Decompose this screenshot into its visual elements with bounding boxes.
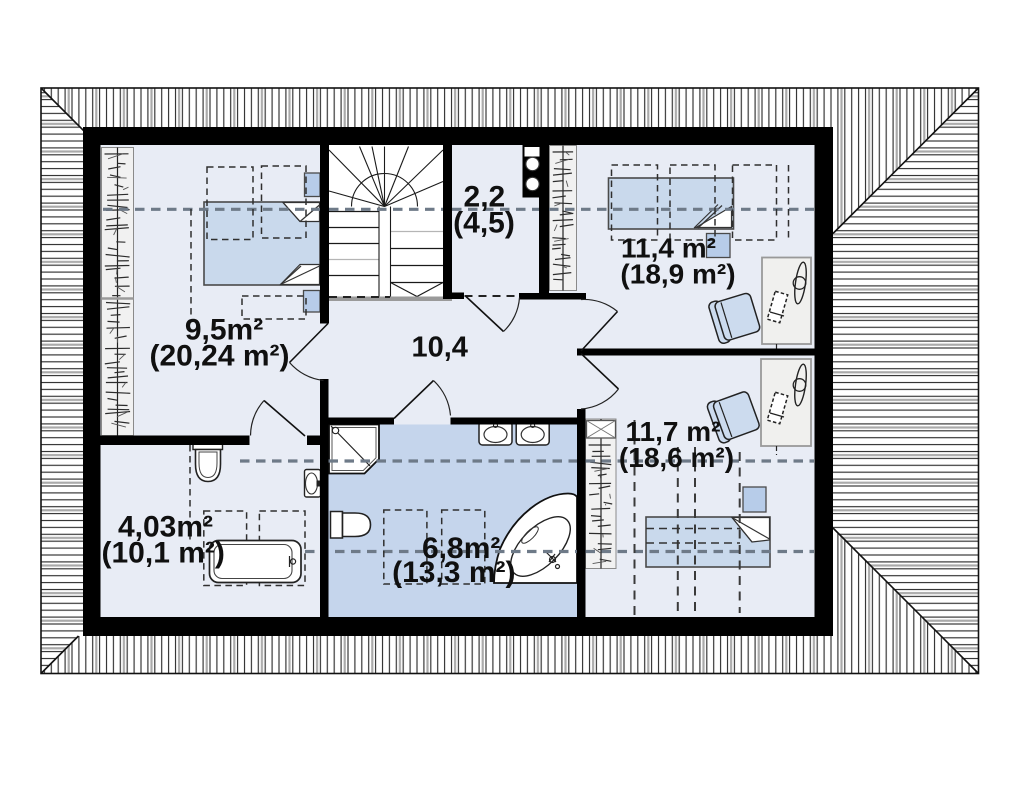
svg-text:(4,5): (4,5) <box>453 206 515 239</box>
svg-text:(18,9 m²): (18,9 m²) <box>620 259 735 290</box>
svg-text:(20,24 m²): (20,24 m²) <box>149 340 289 373</box>
svg-text:(18,6 m²): (18,6 m²) <box>619 442 734 473</box>
svg-text:(13,3 m²): (13,3 m²) <box>392 556 515 589</box>
svg-text:10,4: 10,4 <box>411 331 467 363</box>
svg-text:(10,1 m²): (10,1 m²) <box>102 537 225 570</box>
